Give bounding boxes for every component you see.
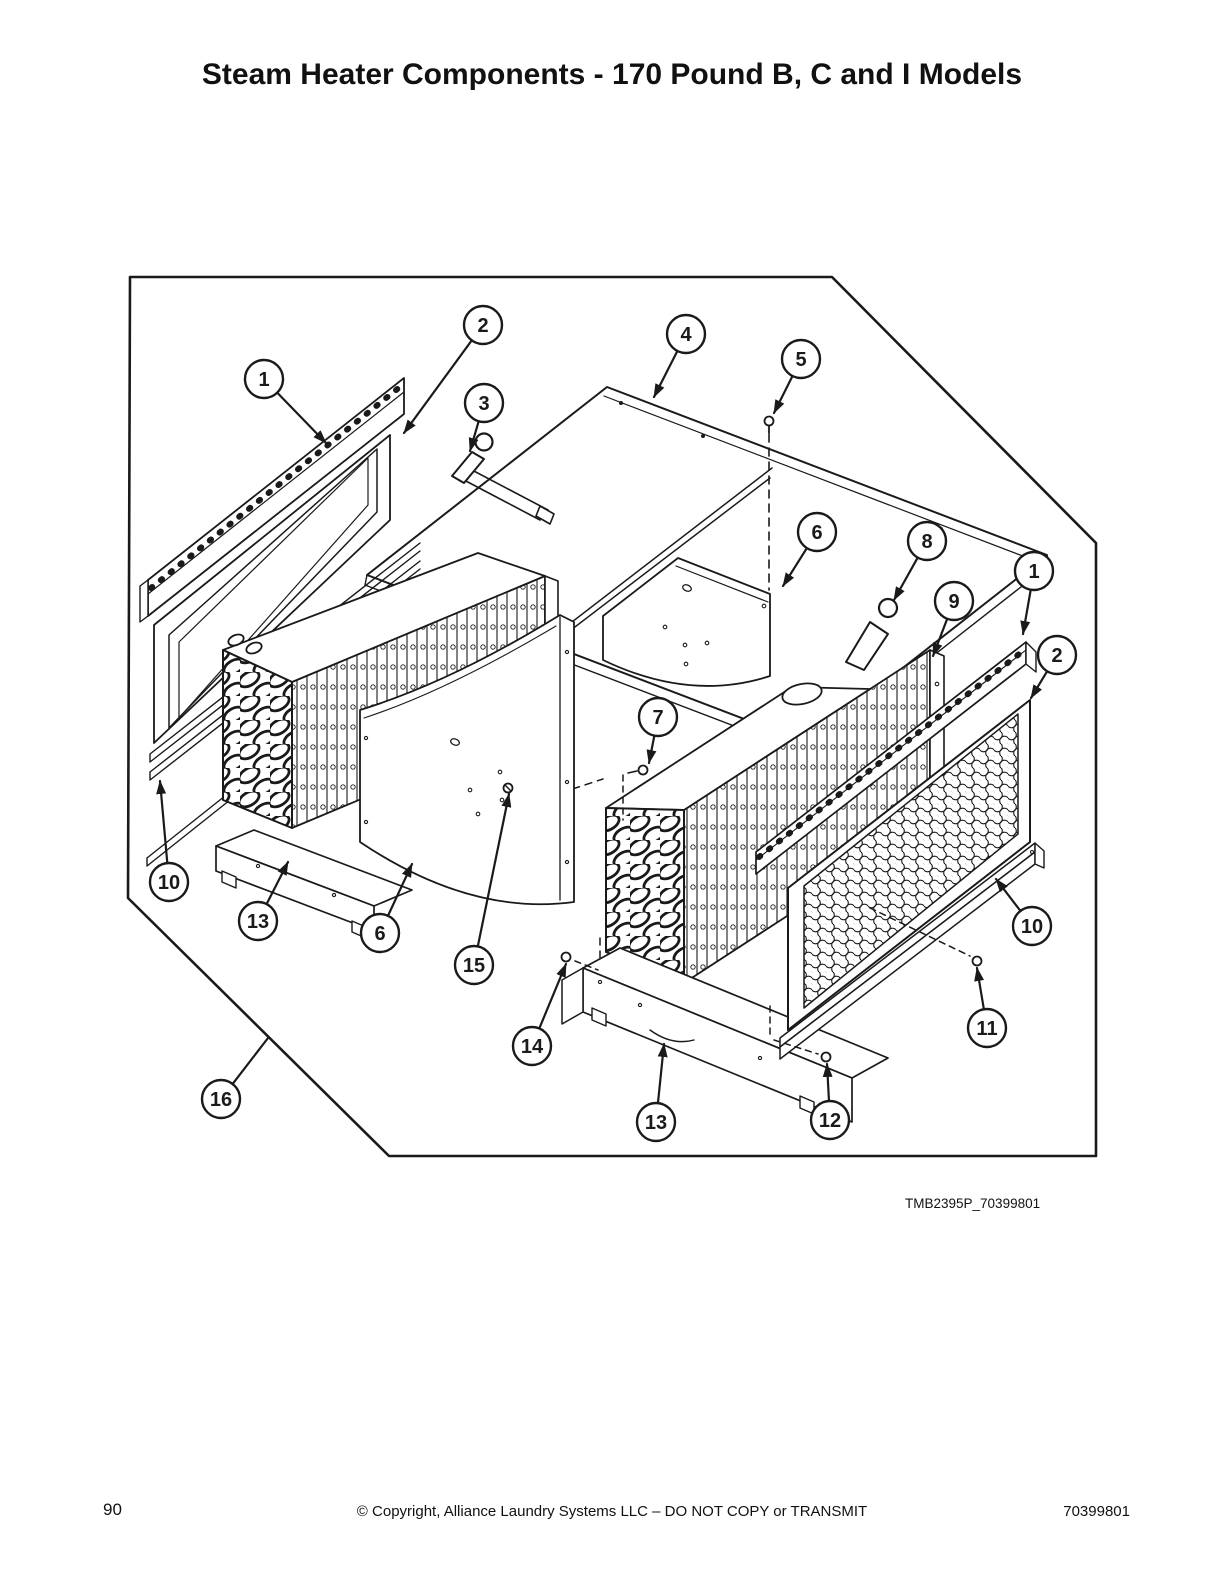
callout-number: 2: [477, 315, 488, 337]
callout-number: 5: [795, 349, 806, 371]
callout-number: 13: [247, 911, 269, 933]
callout-number: 12: [819, 1110, 841, 1132]
callout-number: 11: [976, 1018, 997, 1040]
callout-16: 16: [202, 1038, 268, 1118]
callout-number: 1: [1028, 561, 1039, 583]
callout-number: 15: [463, 955, 485, 977]
callout-number: 4: [680, 324, 692, 346]
exploded-parts-diagram: 123456891271013615141312111016: [0, 0, 1224, 1584]
callout-number: 7: [652, 707, 663, 729]
callout-number: 3: [478, 393, 489, 415]
manual-page: { "page": { "title": "Steam Heater Compo…: [0, 0, 1224, 1584]
callout-number: 1: [258, 369, 269, 391]
callout-number: 13: [645, 1112, 667, 1134]
callout-number: 10: [158, 872, 180, 894]
coil-tube-face: [223, 650, 292, 828]
callout-number: 14: [521, 1036, 544, 1058]
callout-number: 10: [1021, 916, 1043, 938]
callout-number: 2: [1051, 645, 1062, 667]
callout-number: 8: [921, 531, 932, 553]
callout-leader-line: [233, 1038, 268, 1083]
callout-number: 16: [210, 1089, 232, 1111]
callout-number: 6: [811, 522, 822, 544]
callout-number: 9: [948, 591, 959, 613]
callout-number: 6: [374, 923, 385, 945]
